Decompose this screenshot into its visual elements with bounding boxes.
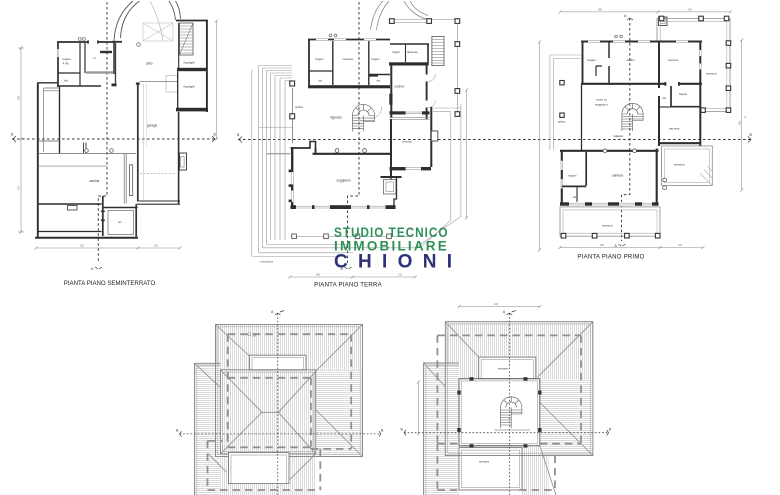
svg-text:ballatoio: ballatoio [614, 134, 624, 138]
svg-text:320: 320 [494, 303, 499, 306]
svg-text:terrazza: terrazza [706, 72, 717, 76]
svg-text:portico: portico [558, 121, 566, 124]
svg-text:bagno: bagno [63, 57, 72, 61]
svg-text:420: 420 [688, 8, 693, 11]
svg-text:PIANTA PIANO SEMINTERRATO: PIANTA PIANO SEMINTERRATO [64, 280, 156, 287]
svg-text:cucina: cucina [395, 85, 404, 89]
svg-text:dis.: dis. [663, 96, 667, 100]
svg-text:camera: camera [669, 127, 680, 131]
svg-text:505: 505 [18, 95, 21, 100]
svg-text:bagno: bagno [316, 57, 324, 61]
svg-text:525: 525 [80, 245, 85, 248]
svg-text:4.46: 4.46 [63, 62, 69, 66]
svg-text:marciapiede: marciapiede [260, 261, 274, 264]
svg-text:485: 485 [316, 274, 321, 277]
svg-text:420: 420 [154, 245, 159, 248]
svg-text:ripostiglio: ripostiglio [184, 85, 196, 89]
svg-text:PIANTA PIANO TERRA: PIANTA PIANO TERRA [314, 282, 382, 289]
svg-text:ripostiglio: ripostiglio [184, 61, 196, 65]
svg-text:cantina: cantina [89, 179, 100, 183]
svg-text:dis.: dis. [64, 79, 69, 83]
svg-text:265: 265 [678, 244, 683, 247]
svg-text:bagno: bagno [569, 174, 577, 178]
svg-text:camera: camera [343, 57, 354, 61]
svg-text:vuoto su: vuoto su [596, 98, 607, 102]
svg-text:soggiorno: soggiorno [337, 179, 352, 183]
svg-text:CHIONI: CHIONI [334, 252, 462, 273]
svg-text:camera: camera [612, 174, 623, 178]
svg-text:terrazza: terrazza [602, 224, 613, 228]
svg-text:camera: camera [668, 58, 678, 62]
svg-text:portico: portico [295, 105, 304, 109]
svg-text:pranzo: pranzo [403, 140, 413, 144]
svg-text:dis.: dis. [377, 79, 381, 83]
svg-text:bagno: bagno [588, 58, 597, 62]
svg-text:dispensa: dispensa [407, 50, 418, 54]
svg-text:bagno: bagno [393, 50, 401, 54]
svg-text:420: 420 [18, 185, 21, 190]
svg-text:soggiorno: soggiorno [595, 103, 608, 107]
svg-text:bagno: bagno [679, 92, 687, 96]
svg-text:terrazza: terrazza [674, 163, 685, 167]
svg-text:bagno: bagno [372, 57, 380, 61]
svg-text:c.t.: c.t. [93, 56, 97, 60]
svg-text:310: 310 [398, 274, 403, 277]
svg-text:rip.: rip. [118, 220, 122, 224]
svg-text:585: 585 [739, 120, 742, 125]
svg-text:studio: studio [627, 58, 635, 62]
svg-text:terrazza: terrazza [479, 460, 490, 464]
svg-text:terrazza: terrazza [498, 367, 509, 371]
svg-text:585: 585 [598, 8, 603, 11]
svg-text:garage: garage [147, 124, 157, 128]
svg-text:PIANTA PIANO PRIMO: PIANTA PIANO PRIMO [577, 254, 644, 261]
svg-text:585: 585 [600, 244, 605, 247]
svg-text:dis.: dis. [319, 79, 323, 83]
svg-text:atrio: atrio [146, 62, 153, 66]
svg-text:ingresso: ingresso [330, 116, 342, 120]
